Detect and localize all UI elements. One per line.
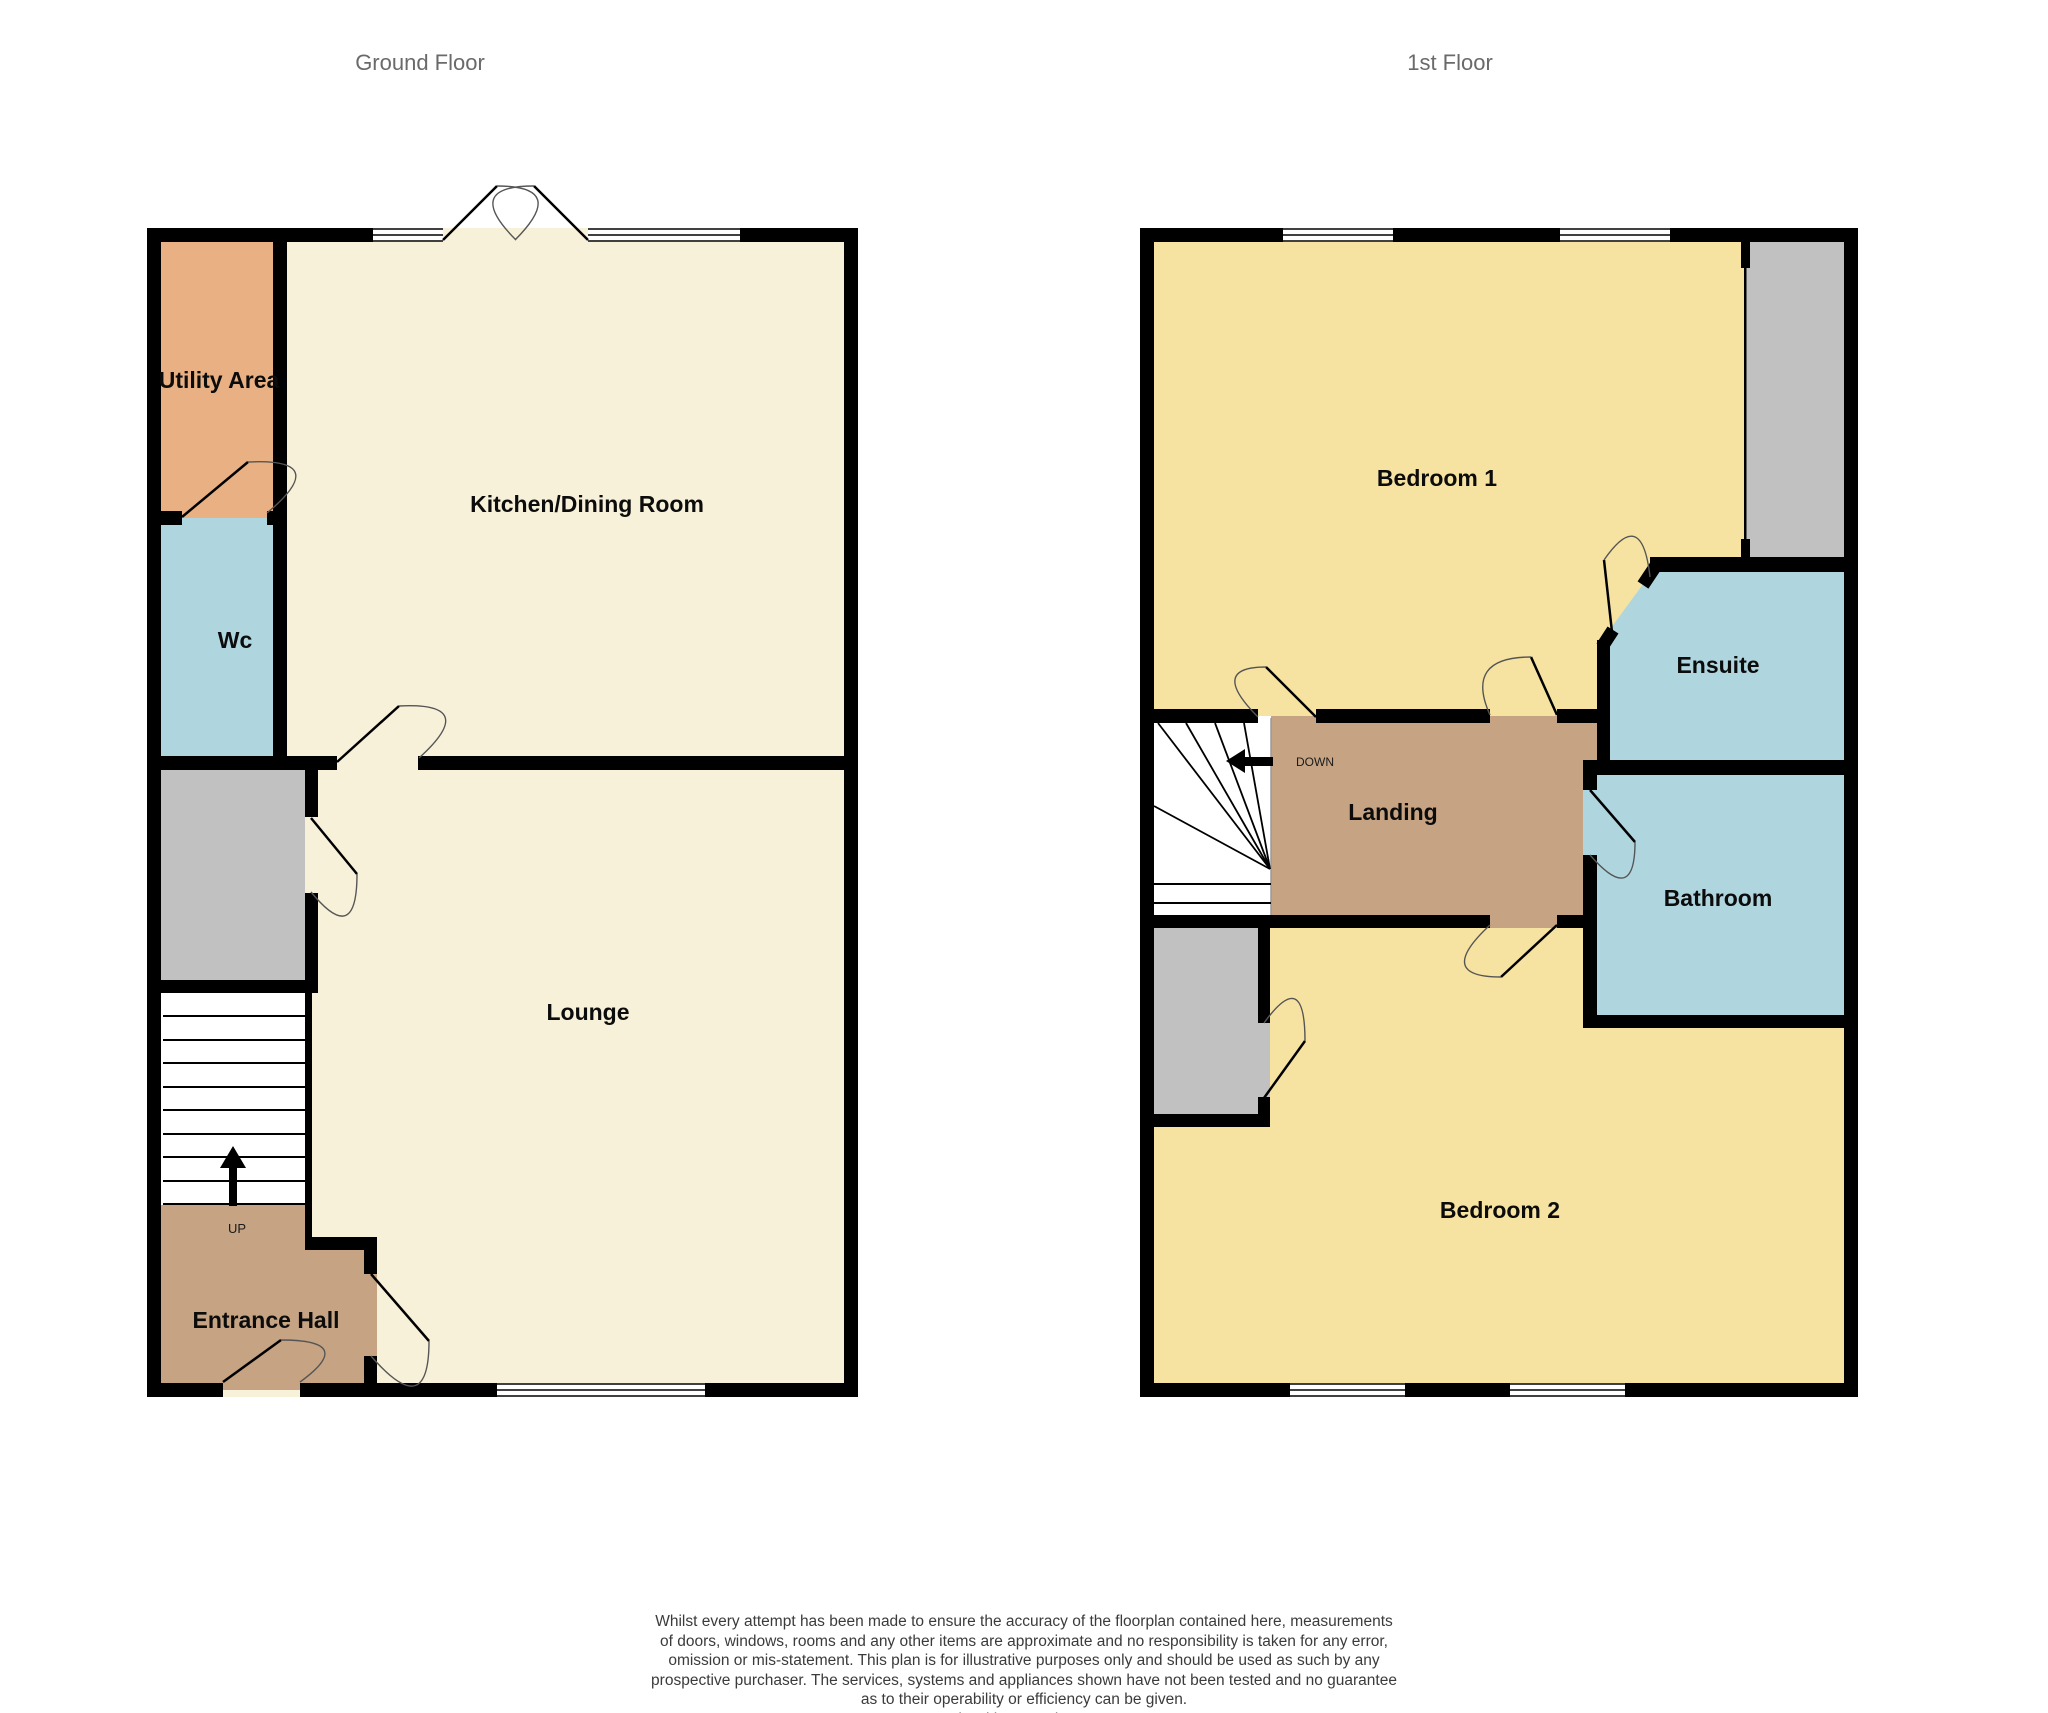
- first-floor-plan: Bedroom 1 Ensuite Landing Bathroom Bedro…: [1140, 228, 1858, 1397]
- wall: [305, 770, 318, 817]
- utility-label: Utility Area: [159, 367, 280, 393]
- wall: [1650, 557, 1844, 572]
- wall: [1625, 1383, 1858, 1397]
- floorplan-page: Utility Area Wc Kitchen/Dining Room Loun…: [0, 0, 2048, 1713]
- wall: [418, 756, 844, 770]
- wall: [1670, 228, 1858, 242]
- wall: [1597, 760, 1844, 775]
- disclaimer-credit: Made with Metropix ©2026: [0, 1710, 2048, 1713]
- disclaimer-line: prospective purchaser. The services, sys…: [0, 1671, 2048, 1691]
- first-floor-title: 1st Floor: [1407, 50, 1493, 75]
- up-label: UP: [228, 1221, 246, 1236]
- wall: [147, 228, 373, 242]
- wardrobe-stub: [1741, 242, 1750, 268]
- wall: [161, 756, 337, 770]
- bathroom-label: Bathroom: [1664, 885, 1773, 911]
- wall: [1844, 228, 1858, 1397]
- wall: [1597, 640, 1610, 775]
- up-arrow-shaft: [229, 1166, 237, 1206]
- wall: [305, 993, 312, 1237]
- wall: [305, 1237, 377, 1250]
- window: [1510, 1383, 1625, 1397]
- ensuite-label: Ensuite: [1676, 652, 1759, 678]
- wc-label: Wc: [218, 627, 253, 653]
- wall: [364, 1250, 377, 1274]
- bedroom1-label: Bedroom 1: [1377, 465, 1497, 491]
- wall: [267, 511, 287, 525]
- disclaimer-line: Whilst every attempt has been made to en…: [0, 1612, 2048, 1632]
- wall: [1140, 1383, 1290, 1397]
- wardrobe-front-line: [1744, 268, 1747, 539]
- wall: [147, 1383, 223, 1397]
- wall: [1140, 228, 1283, 242]
- disclaimer-line: omission or mis-statement. This plan is …: [0, 1651, 2048, 1671]
- window: [1283, 228, 1393, 242]
- disclaimer-line: of doors, windows, rooms and any other i…: [0, 1632, 2048, 1652]
- wall: [147, 228, 161, 1397]
- window: [497, 1383, 705, 1397]
- ff-closet-floor: [1148, 928, 1270, 1120]
- landing-label: Landing: [1348, 799, 1437, 825]
- wall: [1583, 855, 1597, 1015]
- wall: [1557, 709, 1600, 723]
- down-label: DOWN: [1296, 755, 1334, 769]
- wall: [1405, 1383, 1510, 1397]
- window: [373, 228, 443, 242]
- wall: [1583, 1015, 1844, 1028]
- wall: [300, 1383, 497, 1397]
- down-arrow-shaft: [1243, 757, 1273, 766]
- wall: [1258, 928, 1270, 1023]
- lounge-label: Lounge: [546, 999, 629, 1025]
- floorplan-canvas: Utility Area Wc Kitchen/Dining Room Loun…: [0, 0, 2048, 1713]
- wardrobe-floor: [1745, 235, 1851, 565]
- ground-floor-title: Ground Floor: [355, 50, 485, 75]
- wall: [305, 893, 318, 985]
- wall: [1154, 915, 1490, 928]
- wall: [1393, 228, 1560, 242]
- gf-cupboard-floor: [154, 763, 305, 990]
- wall: [1140, 228, 1154, 1397]
- window: [1290, 1383, 1405, 1397]
- wall: [161, 511, 182, 525]
- kitchen-label: Kitchen/Dining Room: [470, 491, 704, 517]
- entrance-label: Entrance Hall: [193, 1307, 340, 1333]
- wall: [705, 1383, 858, 1397]
- disclaimer-text: Whilst every attempt has been made to en…: [0, 1612, 2048, 1713]
- window: [588, 228, 740, 242]
- wall: [1154, 1114, 1270, 1127]
- wall: [1557, 915, 1586, 928]
- disclaimer-line: as to their operability or efficiency ca…: [0, 1690, 2048, 1710]
- ground-floor-plan: Utility Area Wc Kitchen/Dining Room Loun…: [147, 186, 858, 1397]
- bedroom2-label: Bedroom 2: [1440, 1197, 1560, 1223]
- window: [1560, 228, 1670, 242]
- wall: [1316, 709, 1490, 723]
- wall: [844, 228, 858, 1397]
- wall: [161, 980, 318, 993]
- wall: [1154, 709, 1258, 723]
- wall: [1583, 760, 1597, 790]
- wall: [740, 228, 858, 242]
